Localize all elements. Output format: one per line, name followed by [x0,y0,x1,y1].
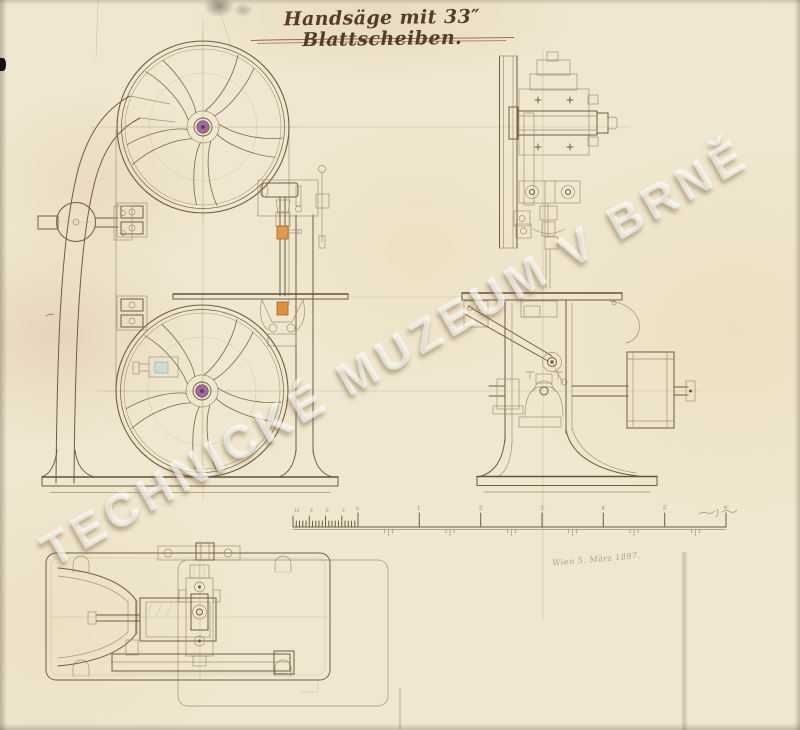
red-pencil-mark [46,314,54,316]
scale-minor-label: 6 [326,508,329,513]
table-tilt-quadrant [610,301,639,343]
saw-table-front [173,294,348,299]
cross-bar-plan [112,640,294,674]
mounting-slots [73,556,291,676]
scale-minor-label: 9 [310,508,313,513]
scale-major-label: 2′ [479,506,484,512]
paper-crease [216,0,231,46]
guide-block-orange-upper [277,226,288,239]
paper-tear-notch [0,58,6,71]
guide-block-orange-lower [277,302,288,315]
scale-major-label: 3′ [540,506,545,512]
saw-blade-lines [116,130,289,388]
drawing-title-text: Handsäge mit 33″ Blattscheiben. [284,6,481,51]
guide-assembly-plan [158,543,240,666]
wheel-edge-band [500,56,518,248]
plan-view [46,543,400,729]
frame-column [42,96,175,483]
drive-shaft-and-pulley [489,352,695,428]
belt-shifter-fitting [133,357,178,377]
scale-major-label: 4′ [601,506,606,512]
scale-major-label: 5′ [663,506,668,512]
scale-bar: 12 9 6 3 0 1′ 2′ 3′ 4′ 5′ 6′ [293,506,737,536]
scale-major-label: 1′ [417,506,422,512]
gear-block-plan [88,598,216,641]
lower-blade-guide [260,300,304,346]
scale-zero-label: 0 [356,507,359,513]
upper-blade-guide [258,166,329,297]
paper-fold-shadow [681,552,688,730]
table-outline-plan [178,560,388,706]
scale-end-note-ink [699,509,737,517]
drawing-title: Handsäge mit 33″ Blattscheiben. [246,6,519,52]
upper-band-wheel [108,31,298,223]
scale-minor-label: 3 [342,508,345,513]
scale-minor-label: 12 [294,508,300,513]
scanned-drawing-sheet: 12 9 6 3 0 1′ 2′ 3′ 4′ 5′ 6′ [0,0,800,730]
